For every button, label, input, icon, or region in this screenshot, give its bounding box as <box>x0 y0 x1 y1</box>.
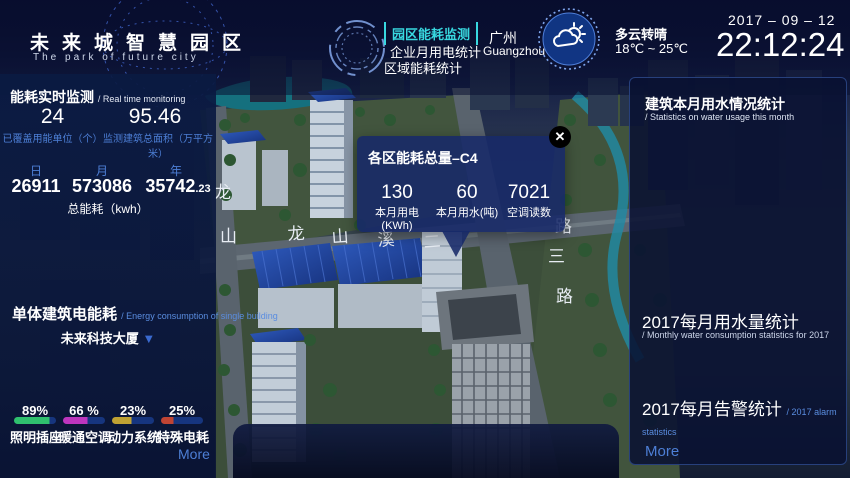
svg-text:龙: 龙 <box>287 224 305 244</box>
svg-text:龙: 龙 <box>214 183 231 202</box>
svg-text:三: 三 <box>548 247 565 266</box>
svg-text:山: 山 <box>220 227 237 246</box>
svg-text:二: 二 <box>423 232 441 252</box>
svg-text:山: 山 <box>331 227 349 247</box>
svg-text:路: 路 <box>556 287 573 306</box>
svg-text:溪: 溪 <box>377 230 395 250</box>
